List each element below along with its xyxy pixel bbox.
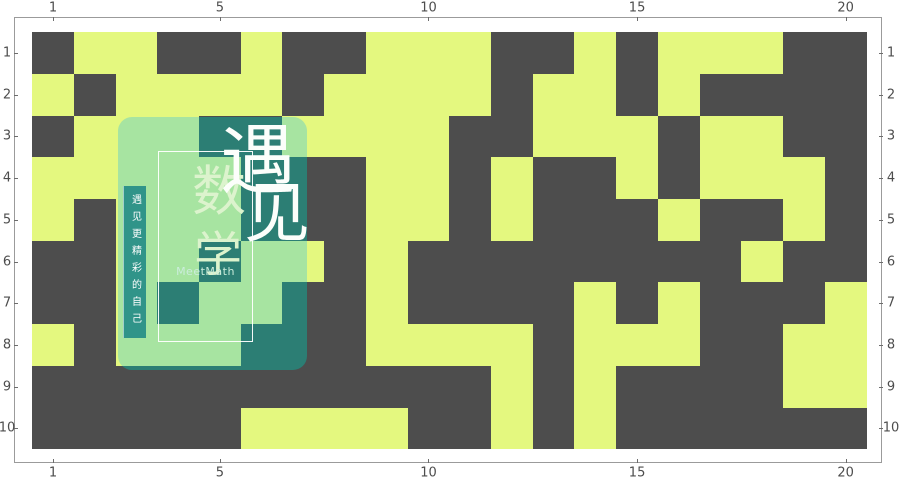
grid-cell (533, 282, 575, 324)
y-tick-right (879, 262, 883, 263)
grid-cell (491, 324, 533, 366)
watermark-grid-cell (118, 117, 157, 157)
grid-cell (324, 116, 366, 158)
grid-cell (241, 74, 283, 116)
watermark-grid-cell (282, 324, 306, 366)
grid-cell (74, 408, 116, 450)
grid-cell (116, 74, 158, 116)
grid-cell (282, 366, 324, 408)
grid-cell (32, 324, 74, 366)
grid-cell (658, 241, 700, 283)
grid-cell (533, 199, 575, 241)
grid-cell (449, 116, 491, 158)
grid-cell (741, 324, 783, 366)
y-tick-label-left: 7 (3, 297, 11, 310)
grid-cell (783, 408, 825, 450)
grid-cell (324, 282, 366, 324)
grid-cell (825, 366, 867, 408)
x-tick-bottom (846, 459, 847, 463)
grid-cell (574, 324, 616, 366)
grid-cell (491, 366, 533, 408)
grid-cell (74, 32, 116, 74)
y-tick-label-left: 9 (3, 380, 11, 393)
grid-cell (700, 241, 742, 283)
y-tick-left (14, 95, 18, 96)
grid-cell (533, 408, 575, 450)
grid-cell (741, 199, 783, 241)
grid-cell (574, 157, 616, 199)
watermark-grid-cell (157, 366, 199, 370)
grid-cell (74, 241, 116, 283)
y-tick-label-right: 2 (887, 88, 895, 101)
grid-cell (449, 241, 491, 283)
grid-cell (366, 157, 408, 199)
grid-cell (574, 74, 616, 116)
grid-cell (616, 408, 658, 450)
grid-cell (700, 408, 742, 450)
grid-cell (616, 241, 658, 283)
grid-cell (616, 199, 658, 241)
grid-cell (491, 241, 533, 283)
grid-cell (825, 74, 867, 116)
grid-cell (366, 199, 408, 241)
grid-cell (157, 32, 199, 74)
grid-cell (741, 366, 783, 408)
grid-cell (741, 116, 783, 158)
grid-cell (32, 74, 74, 116)
grid-cell (324, 324, 366, 366)
grid-cell (32, 32, 74, 74)
grid-cell (449, 324, 491, 366)
y-tick-label-left: 1 (3, 47, 11, 60)
y-tick-right (879, 387, 883, 388)
y-tick-label-right: 8 (887, 339, 895, 352)
watermark-grid-cell (282, 366, 306, 370)
y-tick-left (14, 303, 18, 304)
y-tick-right (879, 220, 883, 221)
grid-cell (741, 32, 783, 74)
y-tick-left (14, 220, 18, 221)
grid-cell (616, 366, 658, 408)
x-tick-label-bottom: 10 (420, 467, 437, 480)
grid-cell (741, 241, 783, 283)
grid-cell (741, 74, 783, 116)
grid-cell (825, 157, 867, 199)
grid-cell (366, 116, 408, 158)
grid-cell (74, 324, 116, 366)
grid-cell (324, 366, 366, 408)
y-tick-label-left: 8 (3, 339, 11, 352)
grid-cell (366, 282, 408, 324)
grid-cell (324, 157, 366, 199)
grid-cell (366, 366, 408, 408)
grid-cell (491, 116, 533, 158)
x-tick-bottom (220, 459, 221, 463)
grid-cell (700, 324, 742, 366)
grid-cell (324, 32, 366, 74)
grid-cell (574, 32, 616, 74)
x-tick-bottom (53, 459, 54, 463)
grid-cell (199, 32, 241, 74)
grid-cell (825, 116, 867, 158)
grid-cell (658, 32, 700, 74)
grid-cell (32, 408, 74, 450)
grid-cell (658, 74, 700, 116)
grid-cell (574, 366, 616, 408)
grid-cell (533, 74, 575, 116)
grid-cell (32, 366, 74, 408)
y-tick-left (14, 345, 18, 346)
grid-cell (74, 74, 116, 116)
grid-cell (324, 241, 366, 283)
grid-cell (74, 366, 116, 408)
x-tick-label-bottom: 15 (629, 467, 646, 480)
grid-cell (783, 32, 825, 74)
grid-cell (324, 74, 366, 116)
y-tick-label-right: 10 (883, 422, 900, 435)
grid-cell (324, 408, 366, 450)
grid-cell (700, 157, 742, 199)
grid-cell (449, 74, 491, 116)
y-tick-left (14, 178, 18, 179)
x-tick-bottom (428, 459, 429, 463)
grid-cell (74, 157, 116, 199)
grid-cell (741, 408, 783, 450)
grid-cell (533, 157, 575, 199)
grid-cell (658, 116, 700, 158)
grid-cell (408, 366, 450, 408)
grid-cell (783, 157, 825, 199)
x-tick-top (53, 17, 54, 21)
y-tick-label-left: 5 (3, 213, 11, 226)
watermark-brand-text: MeetMath (158, 265, 253, 278)
grid-cell (616, 324, 658, 366)
grid-cell (700, 116, 742, 158)
grid-cell (241, 408, 283, 450)
grid-cell (533, 241, 575, 283)
grid-cell (449, 199, 491, 241)
grid-cell (408, 116, 450, 158)
grid-cell (491, 408, 533, 450)
y-tick-left (14, 136, 18, 137)
y-tick-right (879, 53, 883, 54)
y-tick-right (879, 178, 883, 179)
grid-cell (199, 408, 241, 450)
grid-cell (408, 74, 450, 116)
grid-cell (366, 32, 408, 74)
grid-cell (700, 282, 742, 324)
x-tick-label-top: 10 (420, 2, 437, 15)
grid-cell (574, 408, 616, 450)
grid-cell (533, 366, 575, 408)
grid-cell (324, 199, 366, 241)
grid-cell (366, 408, 408, 450)
x-tick-top (220, 17, 221, 21)
grid-cell (366, 74, 408, 116)
grid-cell (408, 282, 450, 324)
watermark-banner: 遇见更精彩的自己 (123, 186, 146, 338)
watermark-grid-cell (118, 366, 157, 370)
grid-cell (32, 157, 74, 199)
grid-cell (700, 366, 742, 408)
grid-cell (408, 32, 450, 74)
grid-cell (449, 32, 491, 74)
grid-cell (491, 32, 533, 74)
grid-cell (116, 408, 158, 450)
y-tick-label-left: 6 (3, 255, 11, 268)
grid-cell (408, 157, 450, 199)
grid-cell (825, 324, 867, 366)
meetmath-watermark: 遇见更精彩的自己 数 学 遇 见 MeetMath (118, 117, 307, 370)
watermark-grid-cell (199, 366, 241, 370)
grid-cell (449, 282, 491, 324)
grid-cell (783, 282, 825, 324)
grid-cell (366, 241, 408, 283)
grid-cell (282, 74, 324, 116)
grid-cell (616, 74, 658, 116)
x-tick-label-top: 5 (216, 2, 224, 15)
grid-cell (408, 408, 450, 450)
grid-cell (658, 366, 700, 408)
grid-cell (533, 116, 575, 158)
grid-cell (533, 324, 575, 366)
y-tick-label-right: 6 (887, 255, 895, 268)
y-tick-right (879, 345, 883, 346)
y-tick-left (14, 387, 18, 388)
grid-cell (783, 366, 825, 408)
watermark-grid-cell (282, 282, 306, 324)
grid-cell (157, 408, 199, 450)
grid-cell (825, 408, 867, 450)
grid-cell (658, 199, 700, 241)
grid-cell (32, 199, 74, 241)
grid-cell (658, 408, 700, 450)
grid-cell (32, 241, 74, 283)
y-tick-label-left: 2 (3, 88, 11, 101)
y-tick-label-right: 3 (887, 130, 895, 143)
grid-cell (700, 32, 742, 74)
grid-cell (449, 366, 491, 408)
grid-cell (491, 157, 533, 199)
grid-cell (199, 366, 241, 408)
grid-cell (700, 199, 742, 241)
watermark-char-jian: 见 (244, 181, 307, 247)
grid-cell (658, 324, 700, 366)
grid-cell (783, 324, 825, 366)
x-tick-label-bottom: 5 (216, 467, 224, 480)
grid-cell (116, 366, 158, 408)
grid-cell (574, 116, 616, 158)
grid-cell (783, 241, 825, 283)
grid-cell (241, 366, 283, 408)
grid-cell (533, 32, 575, 74)
grid-cell (574, 282, 616, 324)
y-tick-right (879, 303, 883, 304)
grid-cell (408, 199, 450, 241)
grid-cell (157, 74, 199, 116)
y-tick-left (14, 53, 18, 54)
grid-cell (366, 324, 408, 366)
grid-cell (241, 32, 283, 74)
grid-cell (616, 282, 658, 324)
x-tick-top (428, 17, 429, 21)
grid-cell (783, 74, 825, 116)
grid-cell (116, 32, 158, 74)
grid-cell (32, 282, 74, 324)
watermark-grid-cell (241, 366, 283, 370)
grid-cell (74, 199, 116, 241)
grid-cell (199, 74, 241, 116)
grid-cell (449, 408, 491, 450)
y-tick-label-left: 4 (3, 172, 11, 185)
grid-cell (825, 282, 867, 324)
grid-cell (825, 32, 867, 74)
grid-cell (491, 282, 533, 324)
x-tick-bottom (637, 459, 638, 463)
y-tick-left (14, 262, 18, 263)
y-tick-right (879, 95, 883, 96)
grid-cell (825, 241, 867, 283)
y-tick-label-left: 10 (0, 422, 15, 435)
x-tick-top (637, 17, 638, 21)
grid-cell (658, 157, 700, 199)
grid-cell (157, 366, 199, 408)
x-tick-label-top: 1 (49, 2, 57, 15)
grid-cell (491, 74, 533, 116)
y-tick-right (879, 136, 883, 137)
grid-cell (616, 32, 658, 74)
y-tick-label-right: 1 (887, 47, 895, 60)
grid-cell (408, 241, 450, 283)
grid-cell (282, 408, 324, 450)
grid-cell (74, 282, 116, 324)
grid-cell (491, 199, 533, 241)
x-tick-label-top: 15 (629, 2, 646, 15)
grid-cell (32, 116, 74, 158)
grid-cell (658, 282, 700, 324)
grid-cell (616, 157, 658, 199)
matrix-plot-figure: 11551010151520201122334455667788991010 遇… (0, 0, 900, 483)
y-tick-label-right: 5 (887, 213, 895, 226)
watermark-banner-text: 遇见更精彩的自己 (124, 194, 147, 330)
grid-cell (74, 116, 116, 158)
grid-cell (741, 282, 783, 324)
grid-cell (574, 241, 616, 283)
y-tick-label-right: 4 (887, 172, 895, 185)
y-tick-label-right: 9 (887, 380, 895, 393)
grid-cell (783, 199, 825, 241)
grid-cell (783, 116, 825, 158)
grid-cell (700, 74, 742, 116)
grid-cell (449, 157, 491, 199)
x-tick-label-bottom: 20 (837, 467, 854, 480)
x-tick-top (846, 17, 847, 21)
grid-cell (574, 199, 616, 241)
grid-cell (282, 32, 324, 74)
y-tick-label-right: 7 (887, 297, 895, 310)
grid-cell (741, 157, 783, 199)
grid-cell (825, 199, 867, 241)
y-tick-label-left: 3 (3, 130, 11, 143)
x-tick-label-top: 20 (837, 2, 854, 15)
grid-cell (408, 324, 450, 366)
grid-cell (616, 116, 658, 158)
x-tick-label-bottom: 1 (49, 467, 57, 480)
